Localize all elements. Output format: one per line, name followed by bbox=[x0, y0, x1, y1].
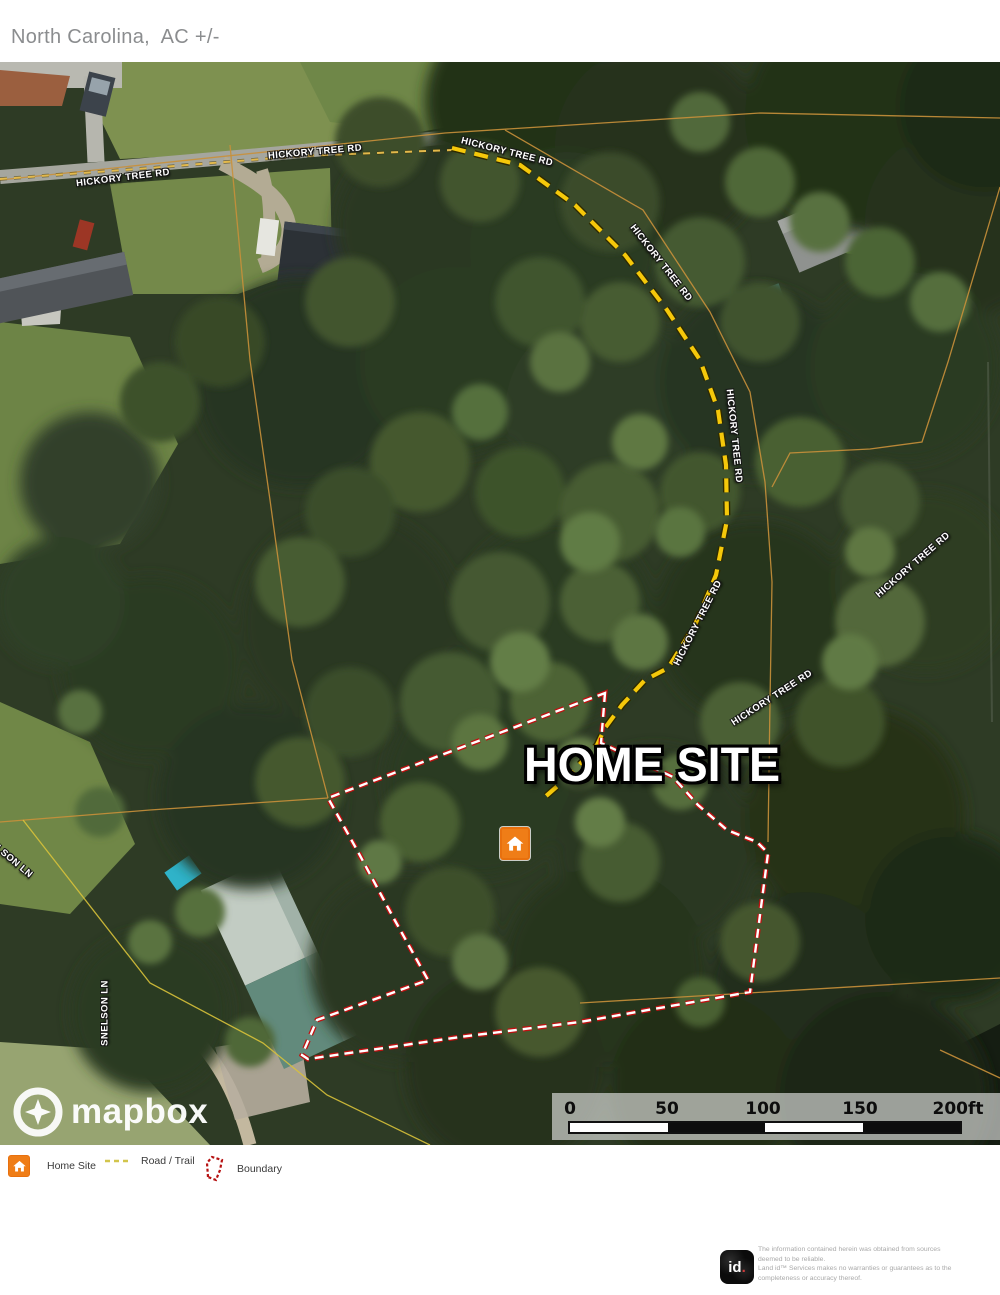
disclaimer-line: deemed to be reliable. bbox=[758, 1255, 990, 1265]
land-id-logo: id. bbox=[720, 1250, 754, 1284]
legend-label: Home Site bbox=[47, 1160, 96, 1172]
header: North Carolina, AC +/- bbox=[0, 0, 1000, 62]
legend-label: Boundary bbox=[237, 1163, 282, 1175]
legend-label: Road / Trail bbox=[141, 1155, 195, 1167]
disclaimer-line: completeness or accuracy thereof. bbox=[758, 1274, 990, 1284]
scale-segment bbox=[668, 1123, 766, 1132]
land-id-logo-text: id. bbox=[728, 1259, 746, 1276]
scale-bar-segments bbox=[568, 1121, 962, 1134]
disclaimer-text: The information contained herein was obt… bbox=[758, 1245, 990, 1284]
scale-segment bbox=[863, 1123, 961, 1132]
brown-roof bbox=[0, 70, 70, 106]
scale-bar: 050100150200ft bbox=[552, 1093, 1000, 1140]
home-site-legend-icon bbox=[8, 1155, 30, 1177]
road-trail-legend-icon bbox=[105, 1158, 129, 1164]
scale-tick-label: 200ft bbox=[932, 1099, 983, 1119]
page-title: North Carolina, AC +/- bbox=[11, 26, 220, 49]
footer: id. The information contained herein was… bbox=[720, 1250, 990, 1284]
scale-tick-label: 50 bbox=[655, 1099, 679, 1119]
map-canvas: HICKORY TREE RDHICKORY TREE RDHICKORY TR… bbox=[0, 62, 1000, 1145]
legend-item-road-trail: Road / Trail bbox=[105, 1155, 195, 1167]
scale-segment bbox=[570, 1123, 668, 1132]
disclaimer-line: The information contained herein was obt… bbox=[758, 1245, 990, 1255]
page: North Carolina, AC +/- bbox=[0, 0, 1000, 1295]
scale-tick-label: 0 bbox=[564, 1099, 576, 1119]
boundary-legend-icon bbox=[204, 1155, 226, 1183]
legend-item-boundary: Boundary bbox=[204, 1155, 282, 1183]
legend-item-home-site: Home Site bbox=[8, 1155, 96, 1177]
legend-bar: Home Site Road / Trail Boundary id. The … bbox=[0, 1145, 1000, 1295]
scale-tick-label: 100 bbox=[745, 1099, 781, 1119]
mapbox-wordmark: mapbox bbox=[71, 1092, 208, 1132]
disclaimer-line: Land id™ Services makes no warranties or… bbox=[758, 1264, 990, 1274]
scale-tick-label: 150 bbox=[842, 1099, 878, 1119]
mapbox-icon bbox=[12, 1086, 64, 1138]
mapbox-attribution[interactable]: mapbox bbox=[12, 1086, 208, 1138]
aerial-imagery bbox=[0, 62, 1000, 1145]
scale-segment bbox=[765, 1123, 863, 1132]
house-icon bbox=[12, 1159, 27, 1174]
